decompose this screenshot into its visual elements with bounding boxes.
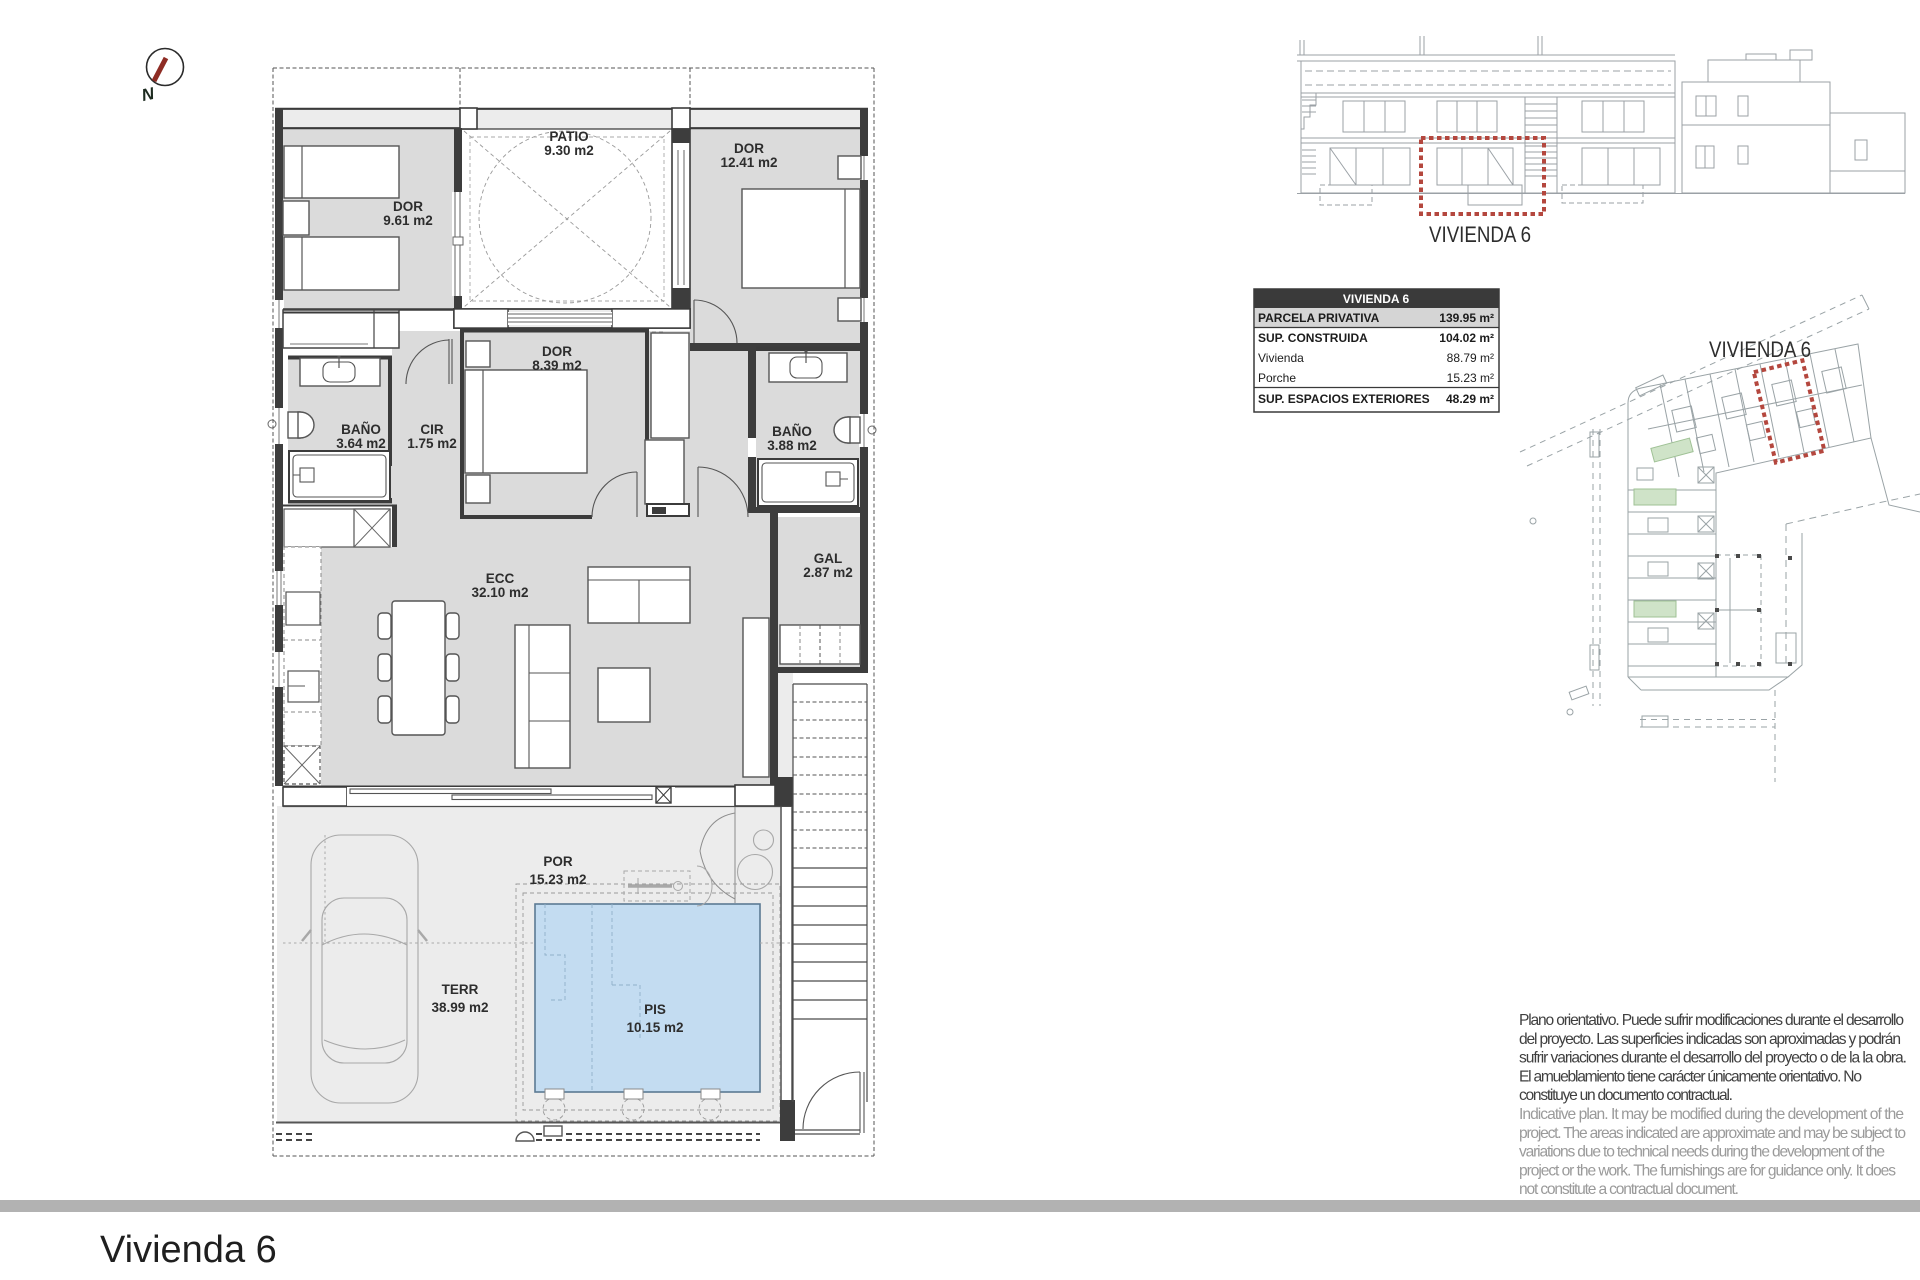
svg-text:38.99 m2: 38.99 m2 — [431, 1000, 488, 1015]
svg-text:3.88 m2: 3.88 m2 — [767, 438, 817, 453]
svg-text:104.02 m²: 104.02 m² — [1439, 331, 1494, 345]
svg-text:PIS: PIS — [644, 1002, 666, 1017]
svg-text:10.15 m2: 10.15 m2 — [626, 1020, 683, 1035]
svg-text:DOR: DOR — [734, 141, 764, 156]
svg-text:15.23 m²: 15.23 m² — [1447, 371, 1494, 385]
svg-text:9.30 m2: 9.30 m2 — [544, 143, 594, 158]
svg-text:CIR: CIR — [420, 422, 444, 437]
svg-text:variations due to technical ne: variations due to technical needs during… — [1519, 1144, 1885, 1161]
svg-text:project or the work. The furni: project or the work. The furnishings are… — [1519, 1162, 1896, 1179]
svg-text:12.41 m2: 12.41 m2 — [720, 155, 777, 170]
svg-text:POR: POR — [543, 854, 573, 869]
svg-text:DOR: DOR — [542, 344, 572, 359]
svg-text:del proyecto. Las superficies: del proyecto. Las superficies indicadas … — [1519, 1031, 1901, 1048]
svg-text:3.64 m2: 3.64 m2 — [336, 436, 386, 451]
svg-text:1.75 m2: 1.75 m2 — [407, 436, 457, 451]
svg-text:15.23 m2: 15.23 m2 — [529, 872, 586, 887]
svg-text:VIVIENDA 6: VIVIENDA 6 — [1429, 222, 1531, 247]
svg-text:ECC: ECC — [486, 571, 515, 586]
svg-text:PARCELA PRIVATIVA: PARCELA PRIVATIVA — [1258, 311, 1380, 325]
svg-text:GAL: GAL — [814, 551, 843, 566]
svg-text:DOR: DOR — [393, 199, 423, 214]
svg-text:48.29 m²: 48.29 m² — [1446, 392, 1494, 406]
svg-text:TERR: TERR — [442, 982, 479, 997]
svg-text:88.79 m²: 88.79 m² — [1447, 351, 1494, 365]
svg-text:VIVIENDA 6: VIVIENDA 6 — [1709, 337, 1811, 362]
svg-text:139.95 m²: 139.95 m² — [1439, 311, 1494, 325]
svg-text:project. The areas indicated a: project. The areas indicated are approxi… — [1519, 1125, 1906, 1142]
svg-text:SUP. ESPACIOS EXTERIORES: SUP. ESPACIOS EXTERIORES — [1258, 392, 1430, 406]
svg-text:BAÑO: BAÑO — [341, 422, 381, 437]
svg-text:Vivienda 6: Vivienda 6 — [100, 1229, 277, 1271]
svg-text:9.61 m2: 9.61 m2 — [383, 213, 433, 228]
svg-text:Plano orientativo. Puede sufri: Plano orientativo. Puede sufrir modifica… — [1519, 1012, 1904, 1029]
svg-text:8.39 m2: 8.39 m2 — [532, 358, 582, 373]
svg-text:BAÑO: BAÑO — [772, 424, 812, 439]
svg-text:constituye un documento contra: constituye un documento contractual. — [1519, 1087, 1733, 1104]
svg-text:not constitute a contractual d: not constitute a contractual document. — [1519, 1181, 1739, 1198]
svg-text:Porche: Porche — [1258, 371, 1296, 385]
svg-text:Vivienda: Vivienda — [1258, 351, 1304, 365]
svg-text:El amueblamiento tiene carácte: El amueblamiento tiene carácter únicamen… — [1519, 1068, 1862, 1085]
svg-text:VIVIENDA 6: VIVIENDA 6 — [1343, 292, 1410, 306]
svg-text:Indicative plan. It may be mod: Indicative plan. It may be modified duri… — [1519, 1106, 1904, 1123]
svg-text:PATIO: PATIO — [549, 129, 588, 144]
svg-text:2.87 m2: 2.87 m2 — [803, 565, 853, 580]
svg-text:SUP. CONSTRUIDA: SUP. CONSTRUIDA — [1258, 331, 1368, 345]
svg-text:32.10 m2: 32.10 m2 — [471, 585, 528, 600]
svg-text:sufrir variaciones durante el: sufrir variaciones durante el desarrollo… — [1519, 1050, 1907, 1067]
